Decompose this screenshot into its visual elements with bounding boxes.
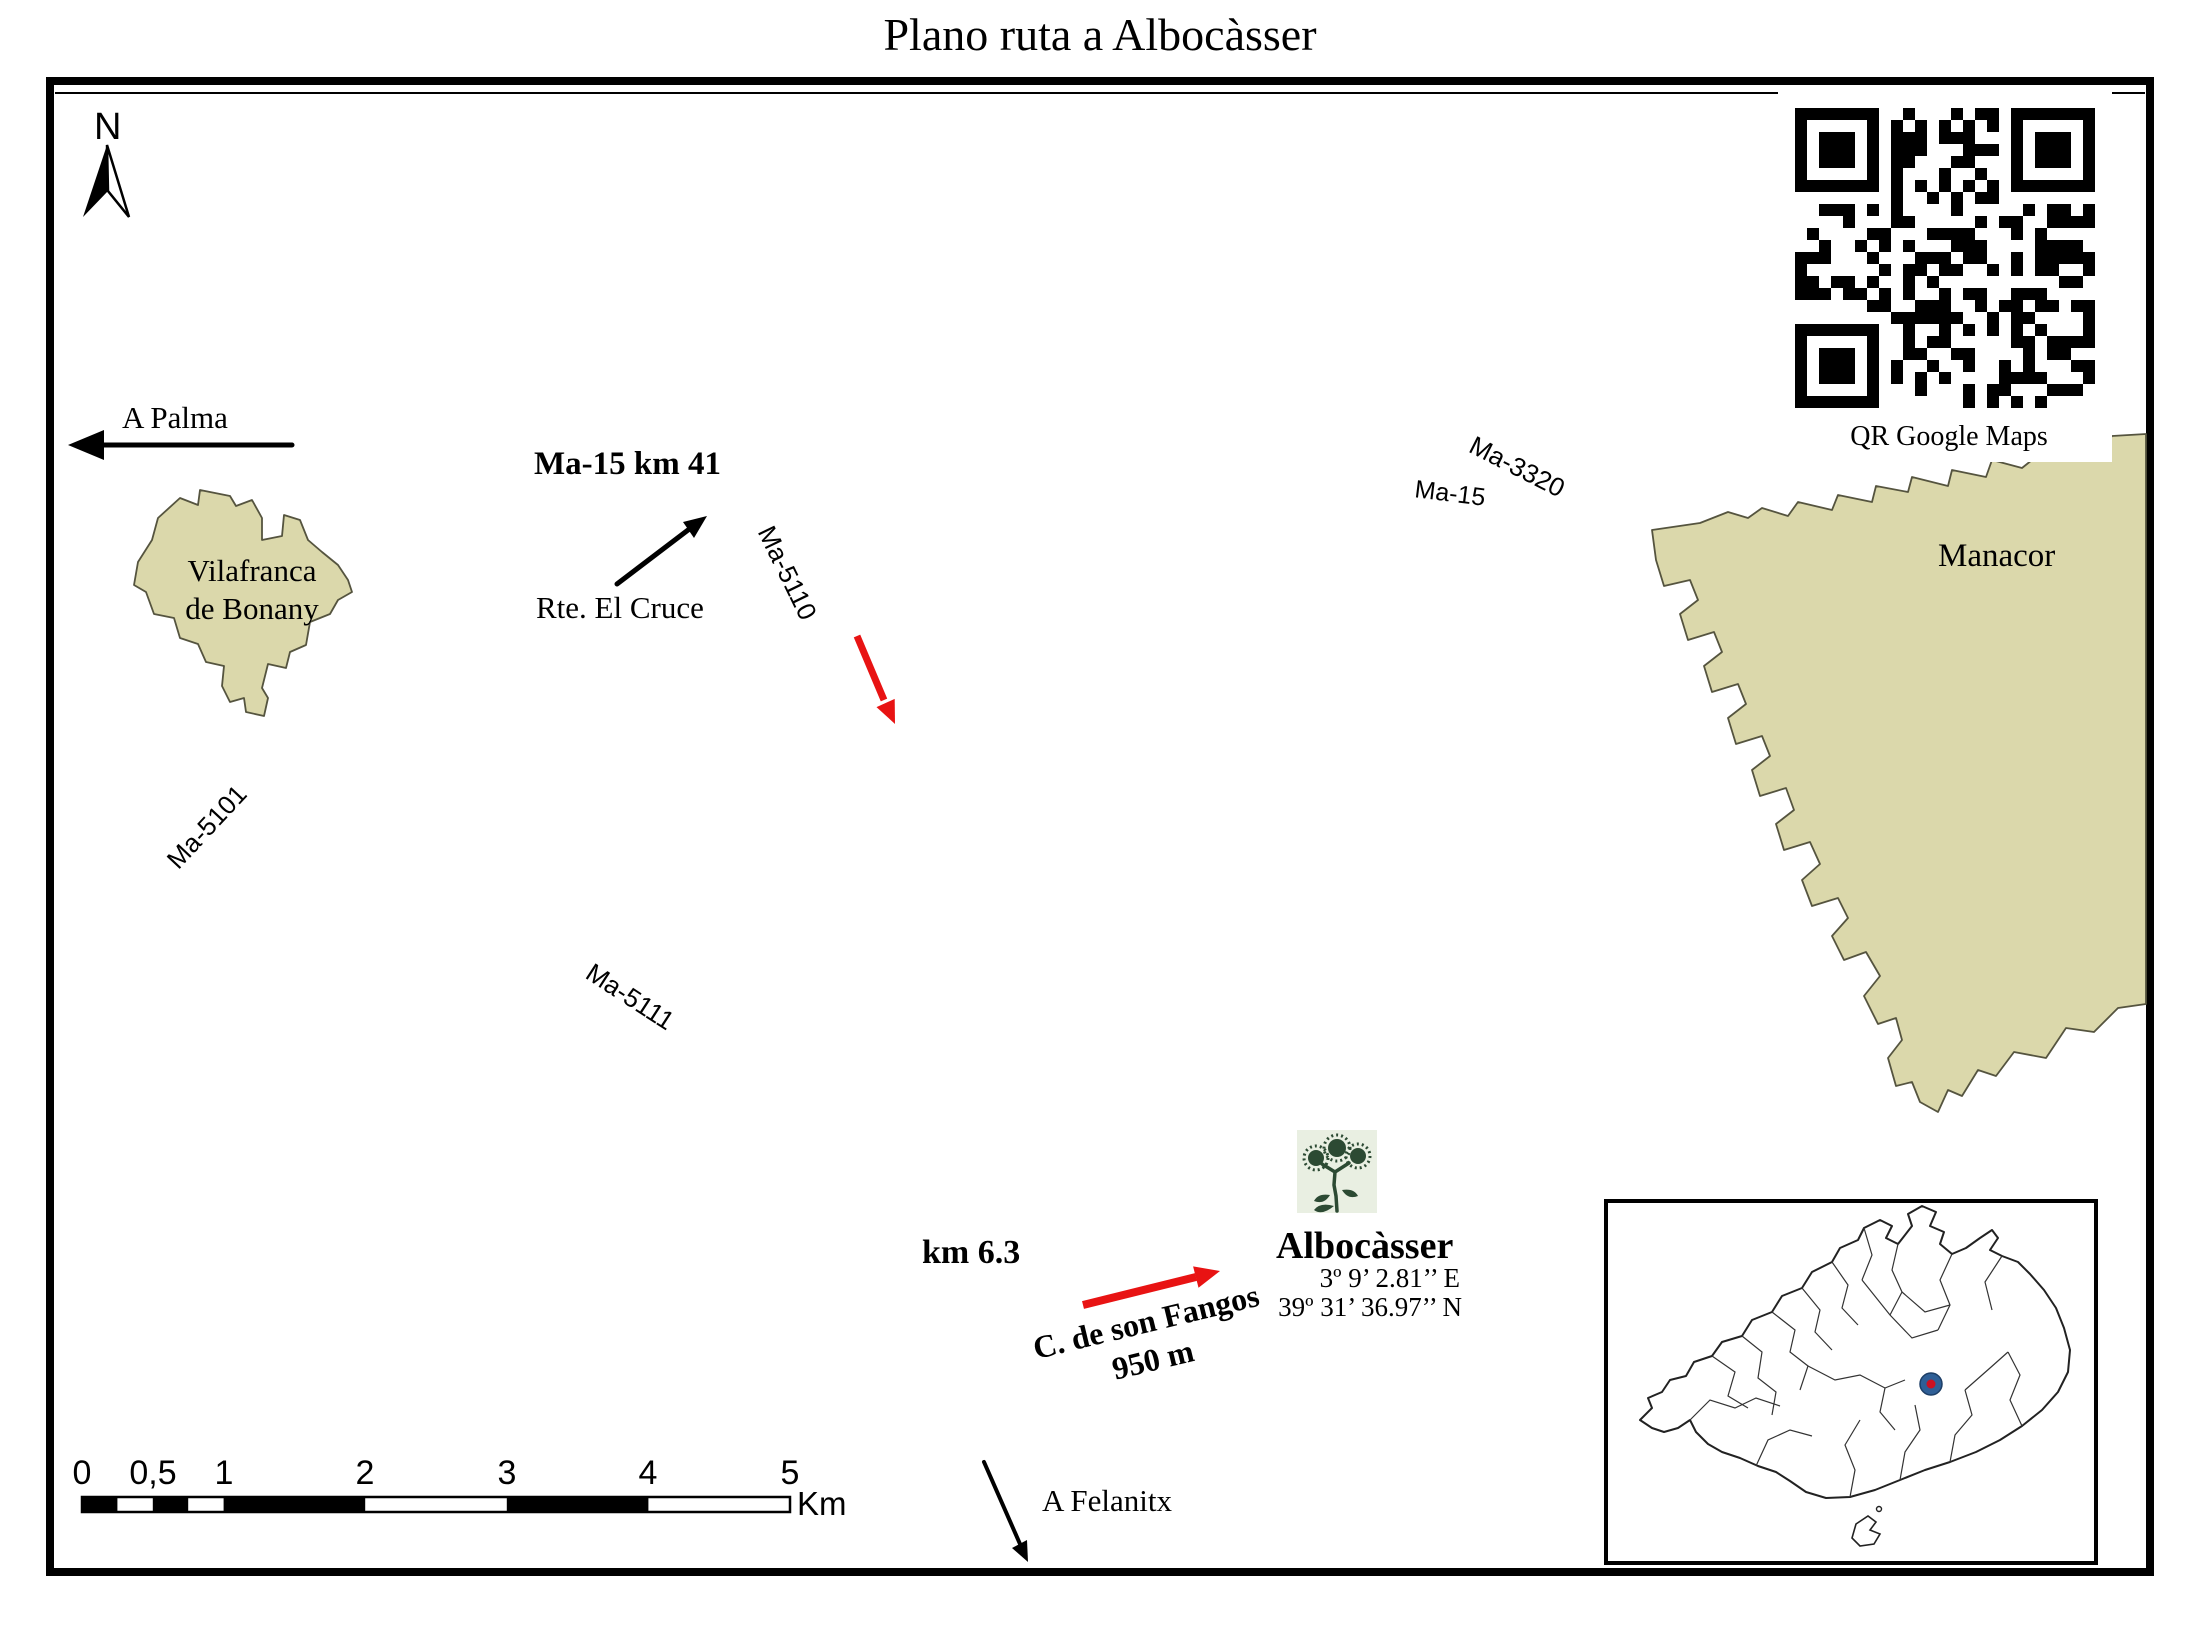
- qr-code: [1778, 92, 2112, 462]
- manacor-polygon: [1652, 434, 2146, 1112]
- scalebar-tick-label: 2: [356, 1454, 375, 1493]
- cruce-arrow-icon: [617, 516, 707, 584]
- road-ma3320-path: [793, 82, 1573, 515]
- route-arrows: [857, 636, 1220, 1305]
- scale-bar: [82, 1497, 790, 1512]
- manacor-label: Manacor: [1938, 538, 2055, 575]
- route-arrow-1-icon: [857, 636, 895, 724]
- scalebar-unit-label: Km: [797, 1485, 847, 1523]
- map-title: Plano ruta a Albocàsser: [883, 8, 1316, 61]
- map-page: Plano ruta a Albocàsser N A Palma Vilafr…: [0, 0, 2200, 1650]
- vilafranca-label: Vilafranca de Bonany: [185, 552, 318, 628]
- scalebar-tick-label: 0: [73, 1454, 92, 1493]
- dest-felanitx-label: A Felanitx: [1042, 1483, 1172, 1519]
- road-local-east: [332, 512, 592, 578]
- thistle-plant-icon: [1297, 1130, 1377, 1213]
- road-inset-corner-stub: [1462, 1152, 1604, 1205]
- road-ma5110-path: [573, 82, 1063, 1570]
- scalebar-tick-label: 3: [498, 1454, 517, 1493]
- road-local-west: [50, 600, 140, 608]
- km63-label: km 6.3: [922, 1234, 1020, 1272]
- ma15-km41-label: Ma-15 km 41: [534, 446, 721, 483]
- location-marker-icon: [1920, 1373, 1942, 1395]
- coordinate-north-label: 39º 31’ 36.97’’ N: [1278, 1292, 1462, 1323]
- rte-el-cruce-label: Rte. El Cruce: [536, 590, 704, 626]
- dest-palma-label: A Palma: [122, 400, 228, 436]
- road-ma5111-path: [264, 780, 922, 1417]
- qr-caption-label: QR Google Maps: [1850, 421, 2048, 453]
- vilafranca-label-line2: de Bonany: [185, 590, 318, 628]
- scalebar-tick-label: 4: [639, 1454, 658, 1493]
- felanitx-arrow-icon: [984, 1462, 1028, 1562]
- north-label: N: [94, 106, 121, 149]
- scalebar-tick-label: 0,5: [129, 1454, 176, 1493]
- town-polygons: [134, 434, 2146, 1112]
- scalebar-tick-label: 5: [781, 1454, 800, 1493]
- albocasser-label: Albocàsser: [1276, 1224, 1453, 1268]
- vilafranca-label-line1: Vilafranca: [185, 552, 318, 590]
- scalebar-tick-label: 1: [215, 1454, 234, 1493]
- north-arrow-icon: [83, 145, 129, 217]
- coordinate-east-label: 3º 9’ 2.81’’ E: [1320, 1263, 1460, 1294]
- map-canvas: [0, 0, 2200, 1650]
- mallorca-inset-map: [1606, 1201, 2096, 1563]
